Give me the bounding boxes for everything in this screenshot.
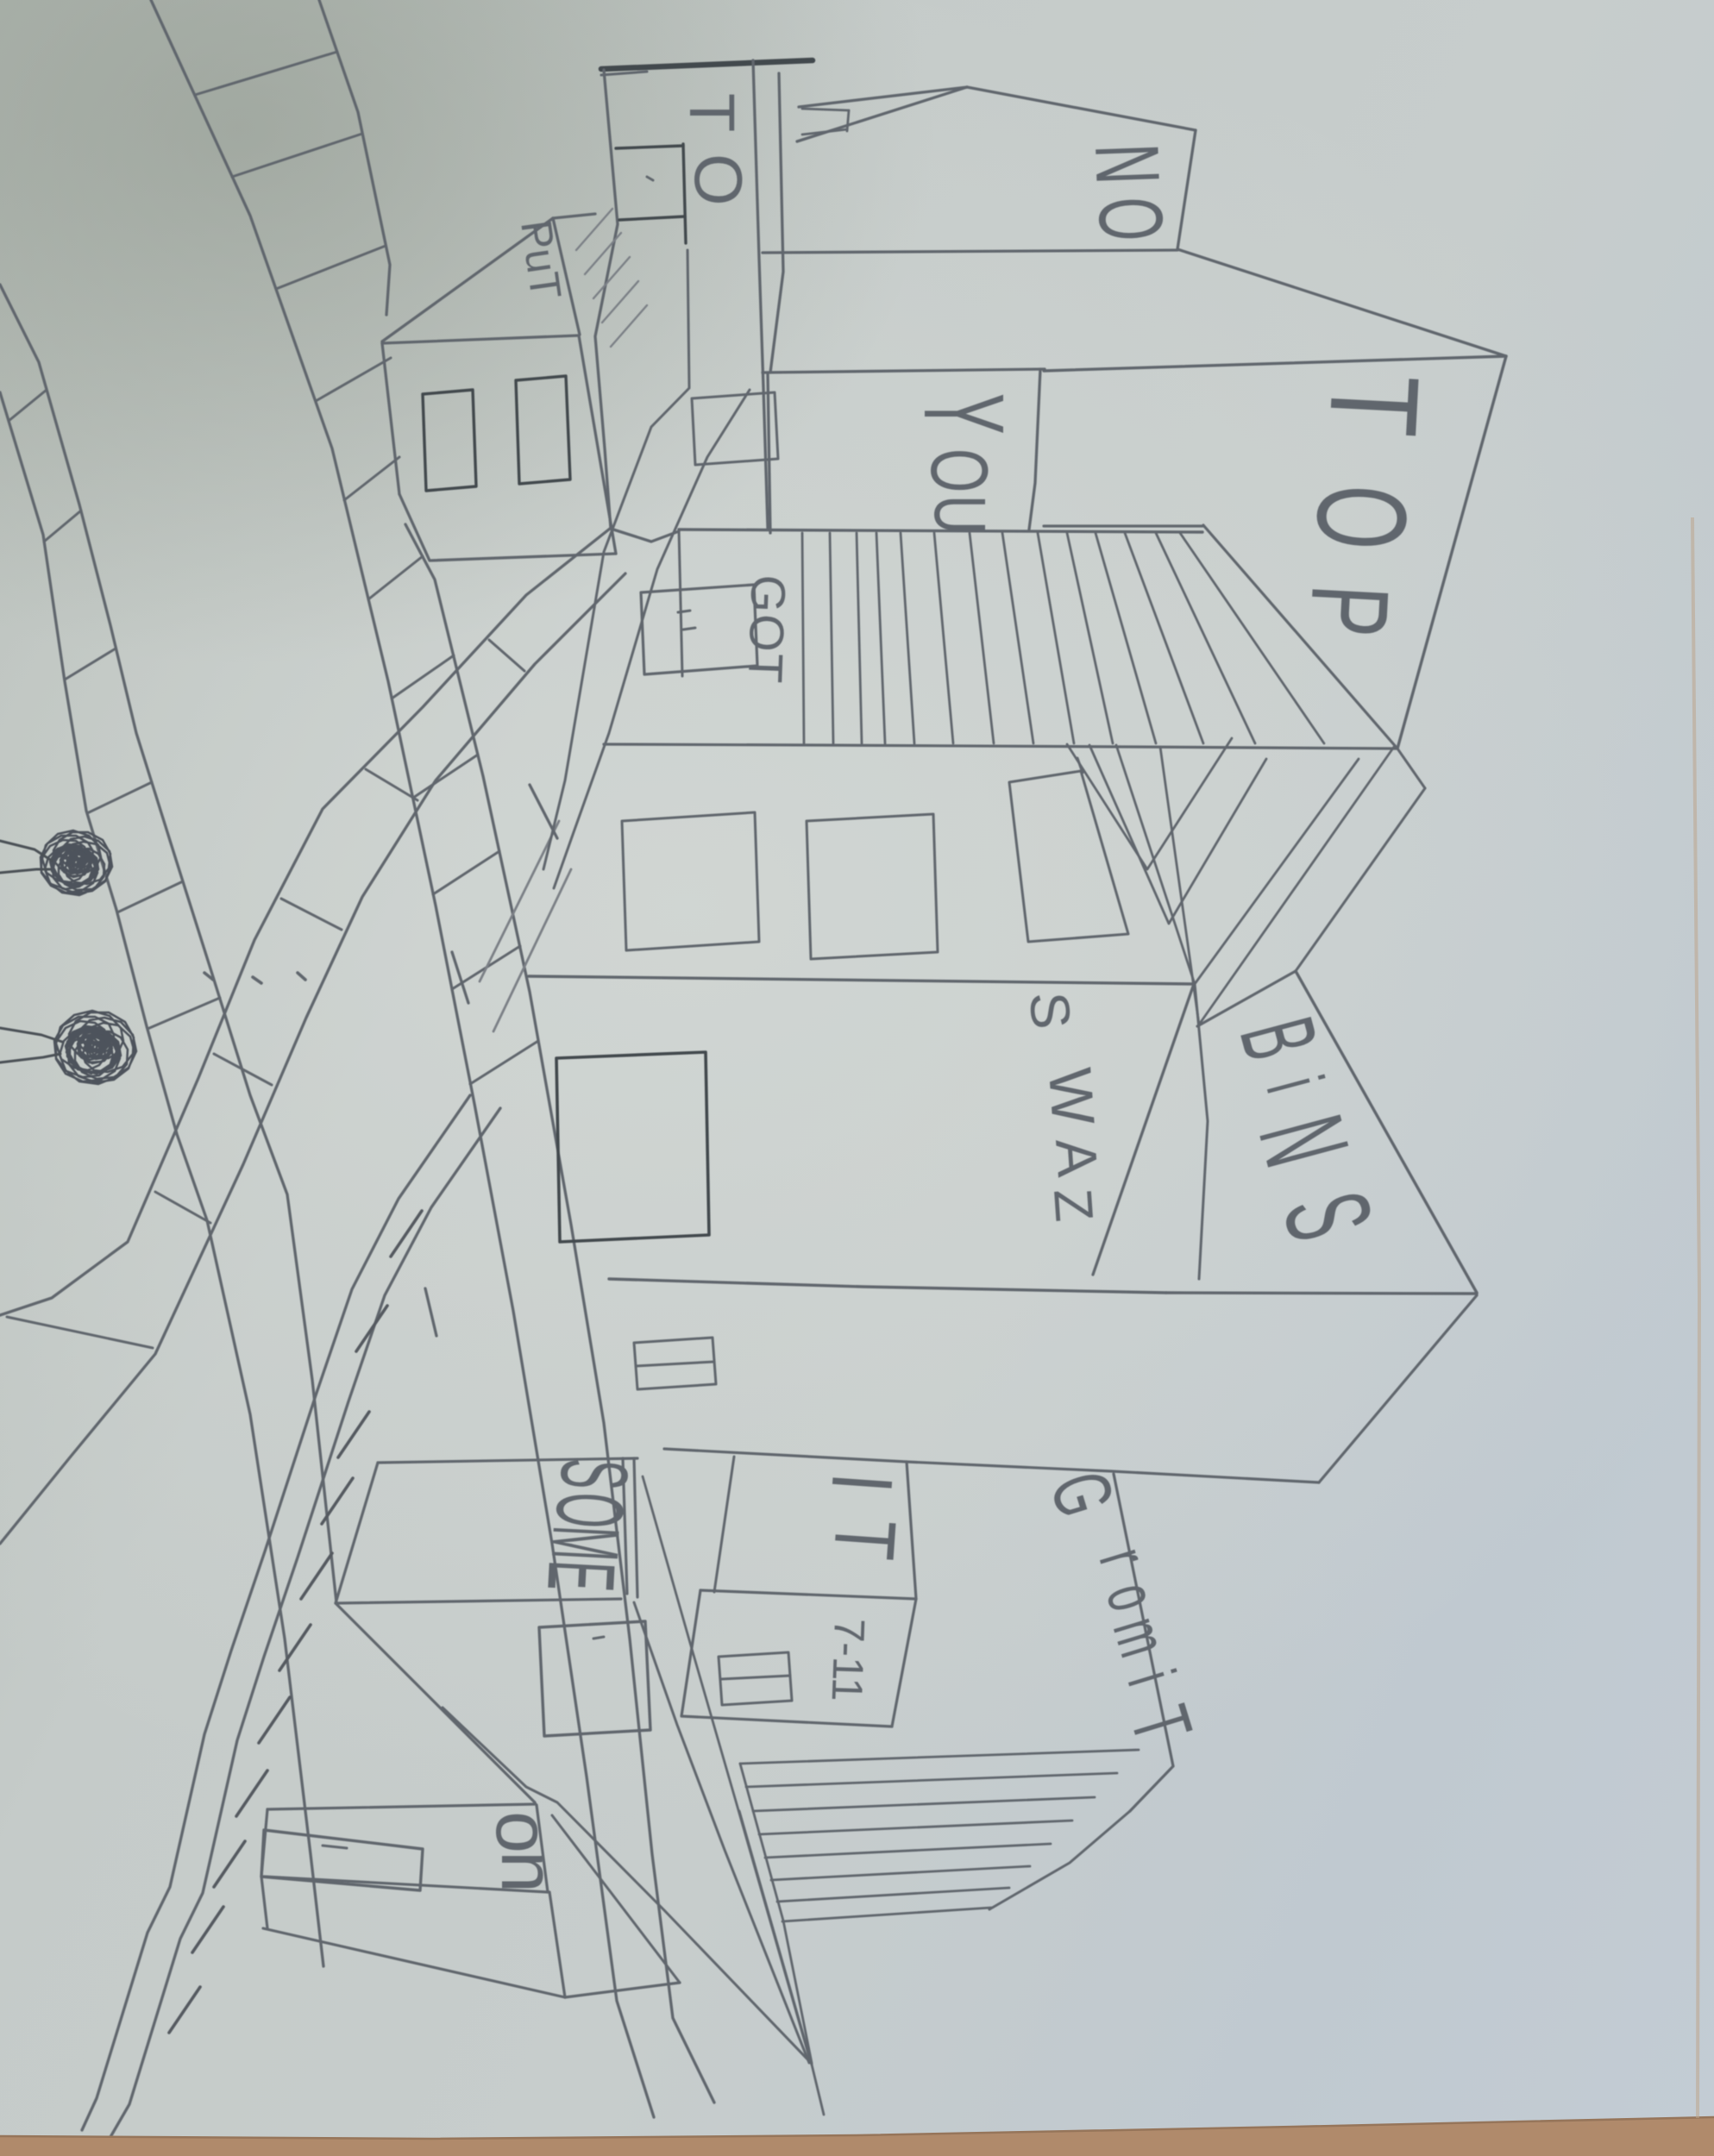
svg-text:W: W [1036,1066,1107,1127]
svg-text:N: N [1076,142,1178,186]
svg-text:T: T [815,1517,914,1564]
svg-text:i: i [1113,1662,1189,1694]
svg-text:Z: Z [1042,1187,1103,1224]
svg-text:E: E [527,1558,634,1594]
svg-text:A: A [1044,1137,1110,1179]
svg-text:B: B [1217,1007,1340,1071]
svg-text:PuT: PuT [512,217,570,303]
svg-text:7-11: 7-11 [823,1618,874,1702]
svg-text:r: r [1084,1539,1162,1576]
svg-text:P: P [1286,582,1411,640]
svg-text:S: S [540,1457,647,1492]
svg-text:i: i [1249,1068,1340,1100]
svg-text:M: M [532,1524,640,1564]
svg-text:Y: Y [900,393,1027,435]
svg-text:n: n [486,1851,571,1893]
svg-text:S: S [1018,990,1083,1031]
svg-text:O: O [914,448,1003,492]
svg-text:O: O [681,154,757,206]
svg-text:S: S [1258,1180,1397,1253]
svg-text:m: m [1098,1608,1182,1665]
svg-text:I: I [813,1470,910,1495]
svg-text:U: U [920,495,1001,535]
svg-text:GOT: GOT [738,574,796,686]
svg-text:T: T [676,93,748,132]
svg-text:o: o [480,1811,566,1853]
svg-text:O: O [1079,196,1182,243]
svg-text:O: O [1289,481,1434,553]
svg-text:T: T [1303,371,1446,439]
svg-text:N: N [1233,1104,1373,1179]
